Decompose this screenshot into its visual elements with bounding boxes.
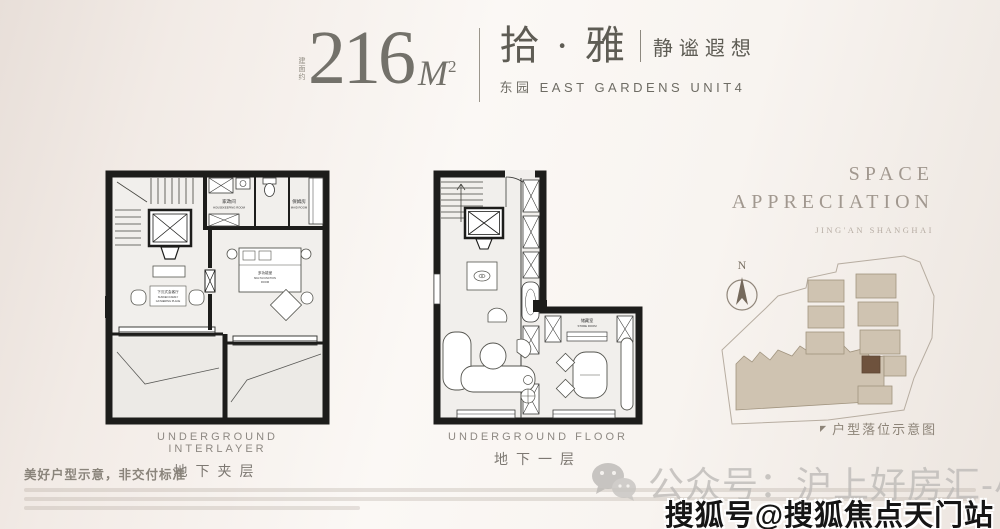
siteplan [708, 252, 943, 437]
sohu-watermark-text: 搜狐号@搜狐焦点天门站 [665, 492, 994, 529]
site-highlighted-building [862, 356, 880, 373]
side-window [434, 274, 440, 304]
foyer-table [467, 262, 497, 290]
space-subtitle: JING'AN SHANGHAI [732, 225, 934, 237]
title-block: 拾 · 雅 静谧遐想 东园 EAST GARDENS UNIT4 [500, 26, 757, 96]
siteplan-marker-icon: ◤ [820, 424, 826, 433]
header-divider [479, 28, 480, 102]
floorplan-underground-interlayer: 家政间 HOUSEKEEPING ROOM 保姆房 MAID ROOM 下沉式会… [105, 170, 330, 425]
title-row: 拾 · 雅 静谧遐想 [500, 26, 757, 66]
lightwell-right [227, 346, 323, 418]
floorplan-underground-floor: 储藏室 STORE ROOM [433, 170, 643, 425]
lightwell-left [113, 338, 221, 418]
site-buildings [736, 274, 906, 410]
subtitle: 东园 EAST GARDENS UNIT4 [500, 77, 757, 96]
title-separator [640, 30, 641, 62]
space-line2: APPRECIATION [732, 188, 934, 216]
room-label: MULTI-FUNCTION [254, 276, 276, 280]
room-label: MAID ROOM [291, 206, 308, 210]
area-note: 建面约 [296, 57, 306, 81]
unit-name: 拾 · 雅 [500, 26, 628, 66]
fineprint-line [24, 506, 360, 510]
room-label: GATHERING PLACE [156, 299, 181, 303]
siteplan-label-text: 户型落位示意图 [832, 419, 937, 438]
area-figure: 建面约 216 M2 [296, 26, 457, 91]
space-line1: SPACE [732, 160, 934, 188]
area-unit-letter: M [418, 53, 448, 93]
space-appreciation-title: SPACE APPRECIATION JING'AN SHANGHAI [732, 160, 934, 237]
room-label: SUNKEN FAMILY [158, 295, 179, 299]
wall-chunk [533, 300, 547, 312]
wechat-icon [590, 461, 638, 503]
caption-left-en: UNDERGROUND INTERLAYER [105, 431, 330, 455]
room-label: 下沉式会客厅 [157, 289, 179, 294]
area-value: 216 [308, 26, 413, 91]
room-label: ROOM [261, 280, 269, 284]
siteplan-label: ◤ 户型落位示意图 [820, 419, 937, 438]
room-label: 家政间 [222, 198, 236, 205]
room-label: 保姆房 [292, 198, 306, 205]
room-label: 多功能室 [258, 270, 273, 275]
room-label: 储藏室 [581, 317, 594, 324]
disclaimer-notice: 美好户型示意，非交付标准 [24, 464, 186, 483]
room-label: STORE ROOM [577, 324, 597, 328]
room-label: HOUSEKEEPING ROOM [213, 206, 246, 210]
poster: 建面约 216 M2 拾 · 雅 静谧遐想 东园 EAST GARDENS UN… [0, 0, 1000, 529]
door-tab [105, 296, 111, 318]
header: 建面约 216 M2 拾 · 雅 静谧遐想 东园 EAST GARDENS UN… [296, 26, 757, 102]
area-unit: M2 [418, 55, 457, 91]
tagline: 静谧遐想 [653, 32, 757, 61]
caption-right-en: UNDERGROUND FLOOR [433, 431, 643, 443]
area-exponent: 2 [448, 57, 457, 76]
